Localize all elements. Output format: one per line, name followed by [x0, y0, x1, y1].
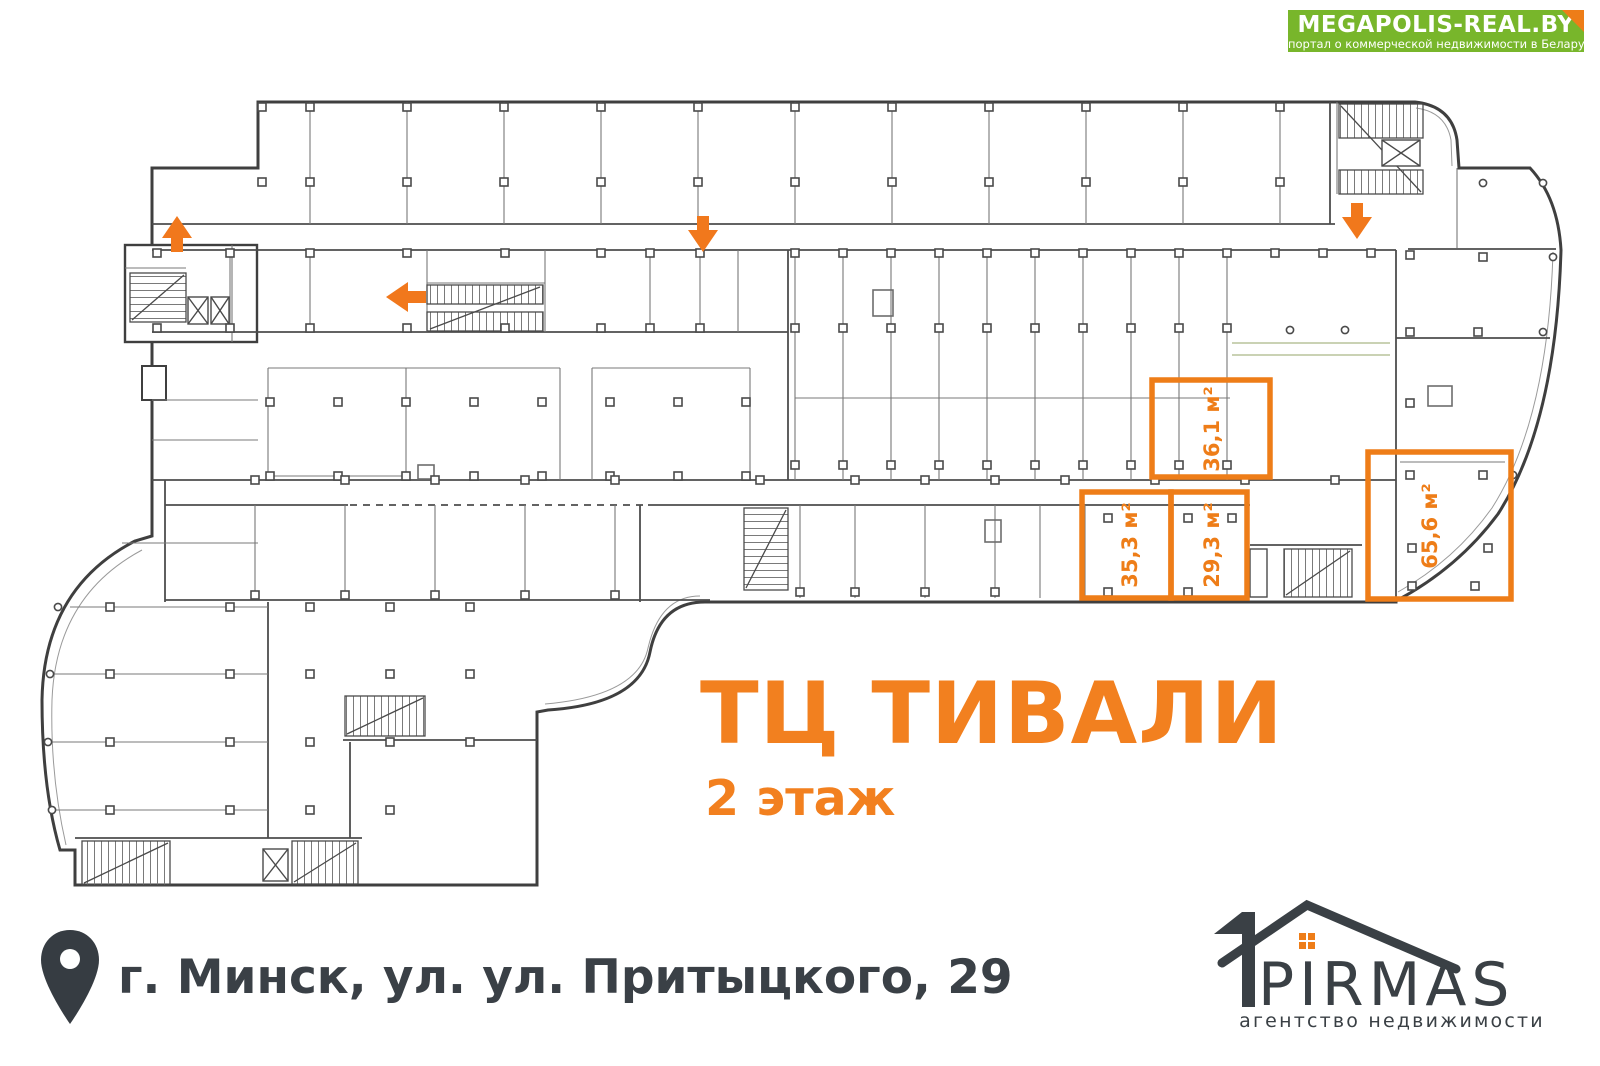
- building-outline: [42, 102, 1561, 885]
- page-title: ТЦ ТИВАЛИ: [700, 664, 1284, 764]
- window-icon: [1299, 933, 1315, 949]
- location-pin-icon: [40, 928, 100, 1028]
- agency-tagline: агентство недвижимости: [1239, 1010, 1545, 1032]
- floor-label: 2 этаж: [705, 770, 895, 827]
- portal-banner: MEGAPOLIS-REAL.BY портал о коммерческой …: [1288, 10, 1584, 52]
- unit-36-label: 36,1 м²: [1200, 386, 1224, 472]
- agency-logo: PIRMAS агентство недвижимости: [1214, 905, 1545, 1032]
- unit-35-label: 35,3 м²: [1118, 502, 1142, 588]
- unit-29-label: 29,3 м²: [1200, 502, 1224, 588]
- address: г. Минск, ул. ул. Притыцкого, 29: [118, 950, 1013, 1005]
- banner-fold-icon: [1562, 10, 1584, 32]
- portal-banner-subtitle: портал о коммерческой недвижимости в Бел…: [1288, 38, 1584, 51]
- portal-banner-title: MEGAPOLIS-REAL.BY: [1288, 10, 1584, 38]
- floor-plan: 36,1 м² 35,3 м² 29,3 м² 65,6 м² PIRMAS а…: [0, 0, 1600, 1066]
- unit-65-label: 65,6 м²: [1418, 483, 1442, 569]
